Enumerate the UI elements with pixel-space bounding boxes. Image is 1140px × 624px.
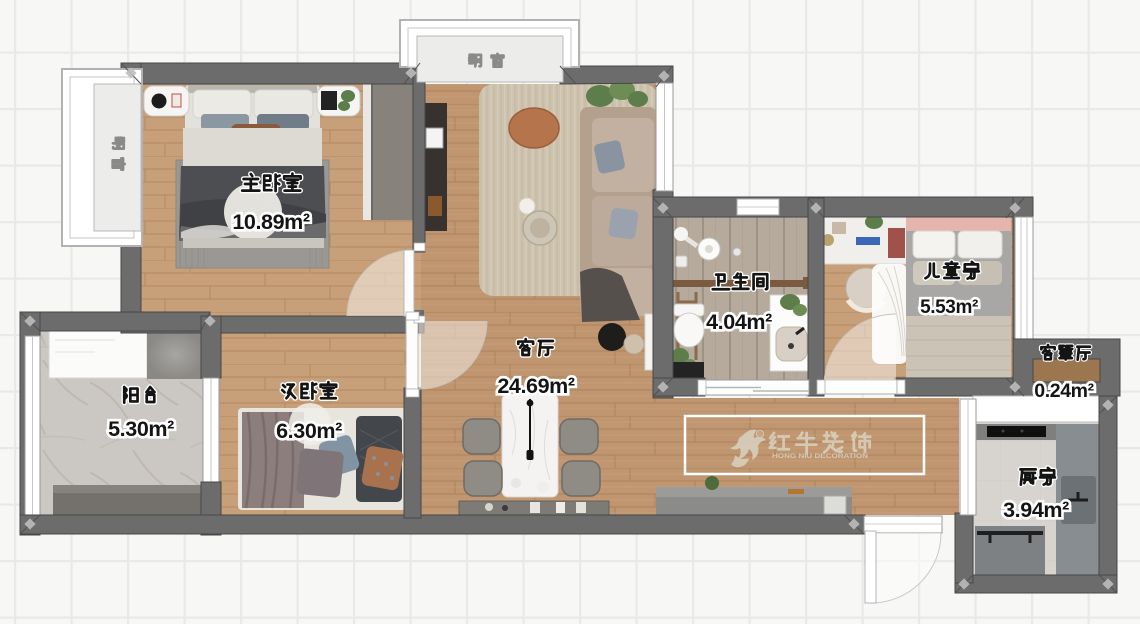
svg-text:6.30m²: 6.30m²	[276, 419, 342, 443]
svg-text:5.30m²: 5.30m²	[108, 417, 174, 441]
svg-text:0.24m²: 0.24m²	[1034, 380, 1094, 402]
svg-text:24.69m²: 24.69m²	[497, 374, 575, 398]
svg-text:4.04m²: 4.04m²	[706, 310, 772, 334]
svg-text:R: R	[758, 433, 762, 439]
svg-text:HONG NIU DECORATION: HONG NIU DECORATION	[772, 453, 868, 460]
svg-text:3.94m²: 3.94m²	[1003, 498, 1069, 522]
svg-text:10.89m²: 10.89m²	[232, 210, 310, 234]
svg-text:5.53m²: 5.53m²	[920, 297, 978, 318]
